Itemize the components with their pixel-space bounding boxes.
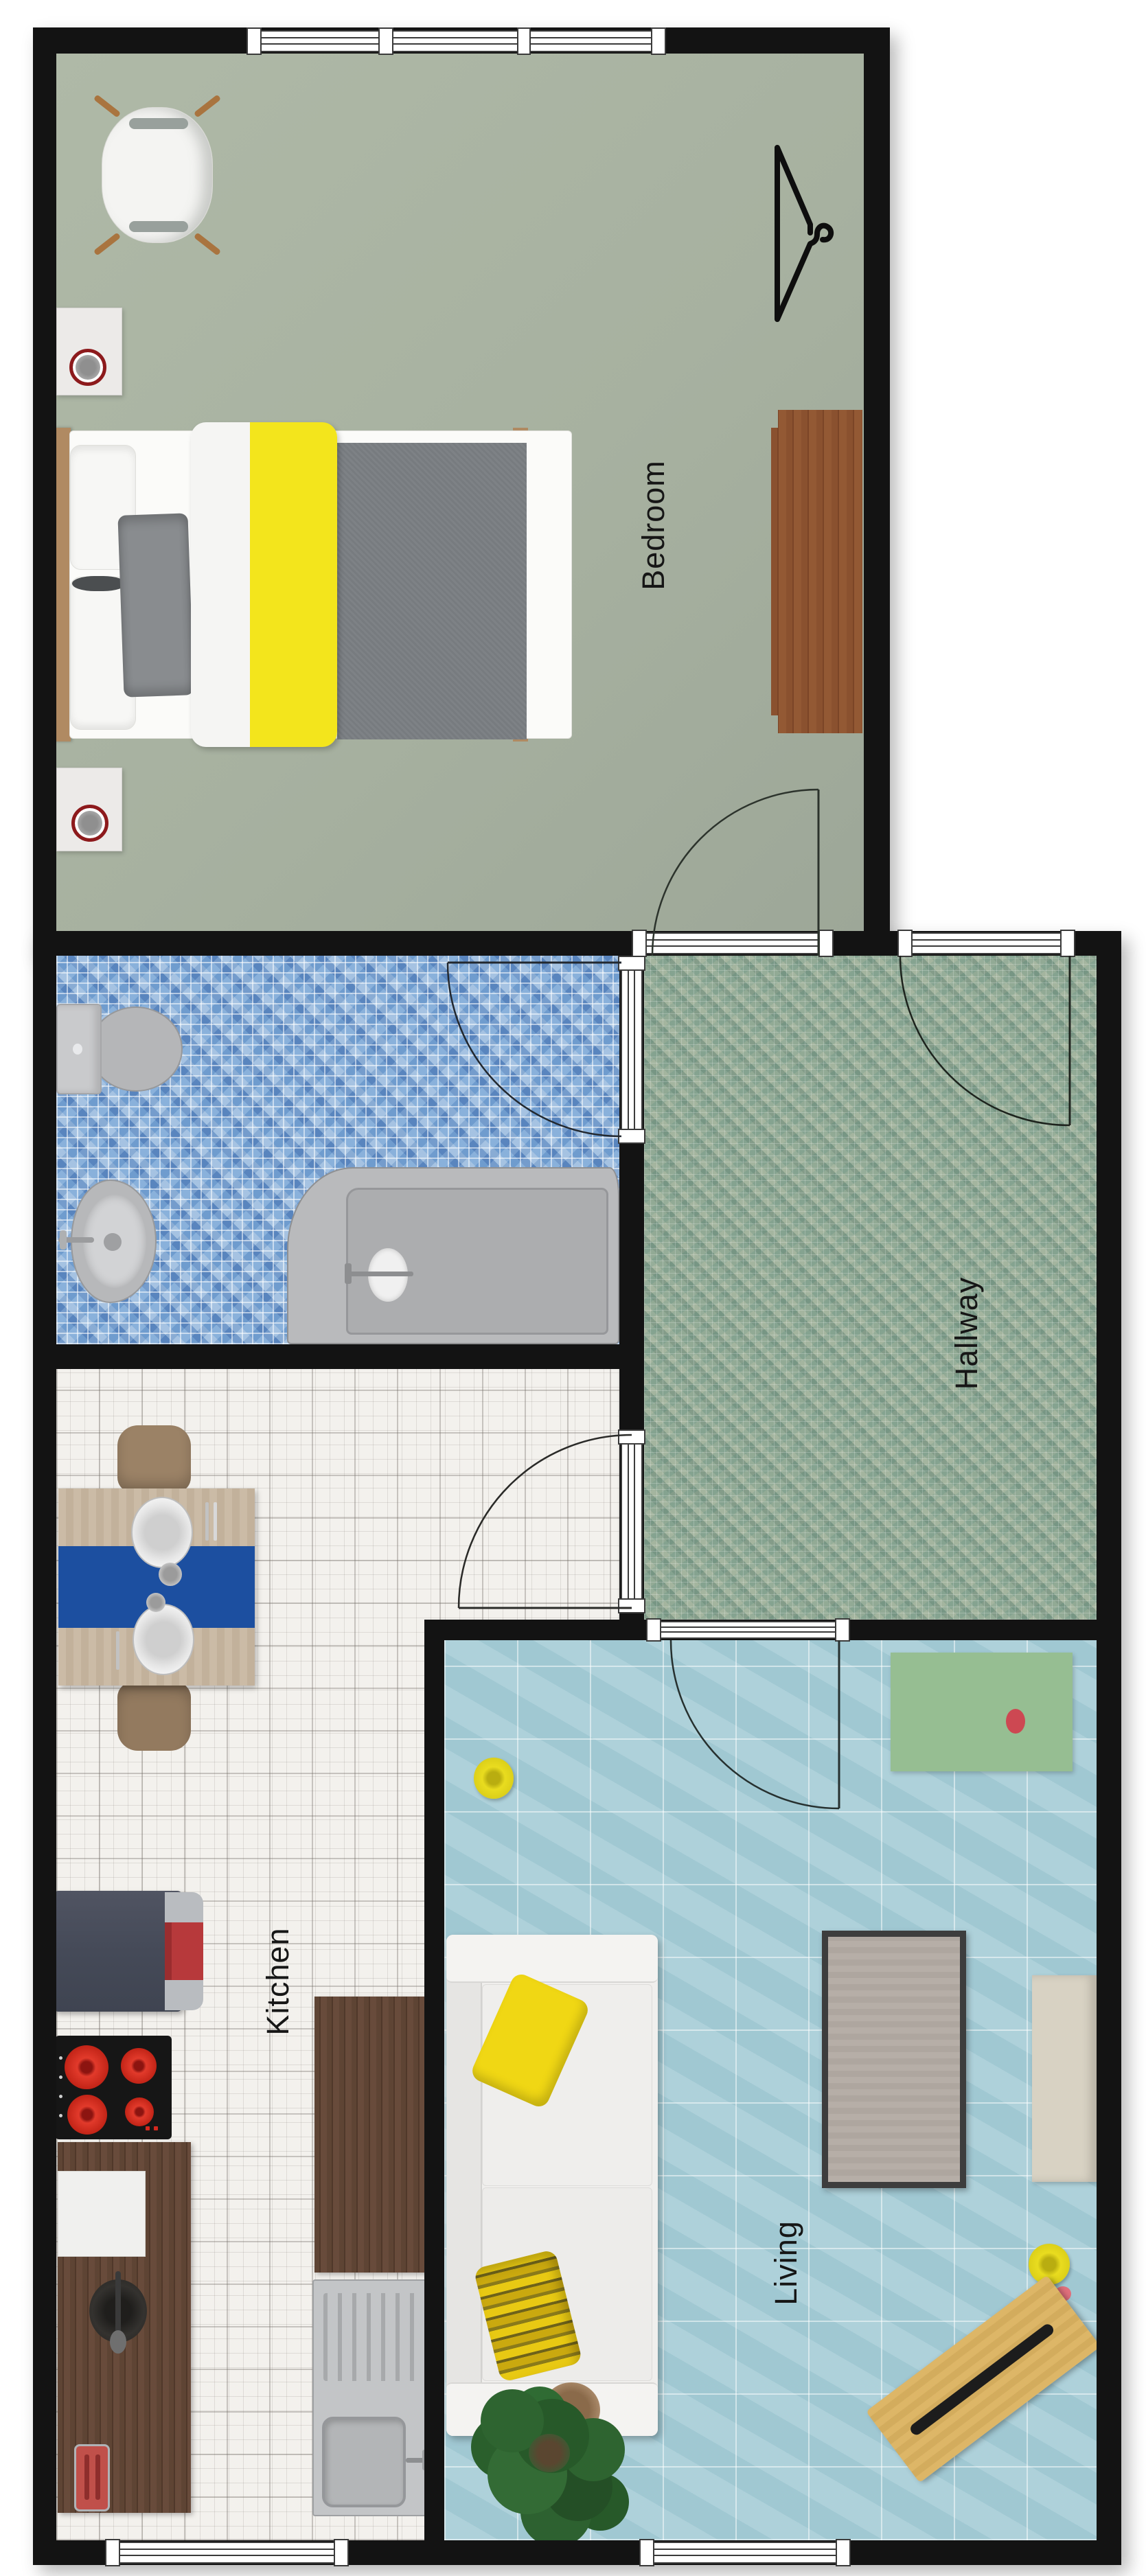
kitchen-door-arc [459, 1435, 632, 1608]
living-door-arc [671, 1640, 839, 1808]
floor-plan: Bedroom Hallway [0, 0, 1146, 2576]
entrance-door-arc [900, 956, 1070, 1125]
bathroom-door-arc [448, 963, 621, 1136]
door-swing-layer [0, 0, 1146, 2576]
bedroom-door-arc [652, 790, 818, 956]
